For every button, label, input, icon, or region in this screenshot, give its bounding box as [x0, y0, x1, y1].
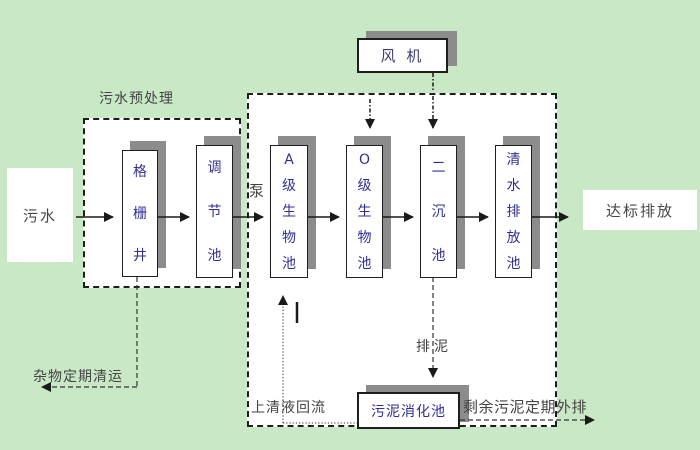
- grid-well-label: 格 栅 井: [133, 151, 147, 277]
- a-level-bio-tank-label: A 级 生 物 池: [282, 147, 296, 277]
- grid-well-tank: 格 栅 井: [122, 150, 158, 277]
- regulating-tank-label: 调 节 池: [208, 146, 222, 278]
- sewage-label: 污水: [23, 205, 57, 226]
- discharge-node: 达标排放: [583, 190, 697, 230]
- secondary-sedimentation-tank: 二 沉 池: [420, 145, 457, 278]
- debris-removal-label: 杂物定期清运: [33, 366, 123, 386]
- a-level-bio-tank: A 级 生 物 池: [270, 145, 308, 278]
- supernatant-return-label: 上清液回流: [251, 397, 326, 417]
- blower-node: 风 机: [357, 38, 448, 73]
- sludge-discharge-label: 排泥: [416, 336, 452, 356]
- sludge-digestion-tank: 污泥消化池: [357, 392, 460, 429]
- o-level-bio-tank: O 级 生 物 池: [346, 145, 383, 278]
- clear-water-discharge-tank: 清 水 排 放 池: [495, 145, 532, 278]
- secondary-sedimentation-tank-label: 二 沉 池: [432, 146, 446, 278]
- pump-label: 泵: [249, 180, 265, 201]
- excess-sludge-label: 剩余污泥定期外排: [463, 396, 587, 417]
- wastewater-flow-diagram: 污水 达标排放 格 栅 井 调 节 池 A 级 生 物 池 O 级 生 物 池 …: [0, 0, 700, 450]
- clear-water-discharge-tank-label: 清 水 排 放 池: [507, 147, 521, 277]
- sludge-digestion-tank-label: 污泥消化池: [371, 401, 446, 421]
- o-level-bio-tank-label: O 级 生 物 池: [358, 147, 372, 277]
- regulating-tank: 调 节 池: [196, 145, 233, 278]
- sewage-node: 污水: [7, 168, 73, 262]
- blower-label: 风 机: [381, 45, 425, 66]
- discharge-label: 达标排放: [606, 200, 674, 221]
- pretreatment-zone-label: 污水预处理: [99, 88, 174, 108]
